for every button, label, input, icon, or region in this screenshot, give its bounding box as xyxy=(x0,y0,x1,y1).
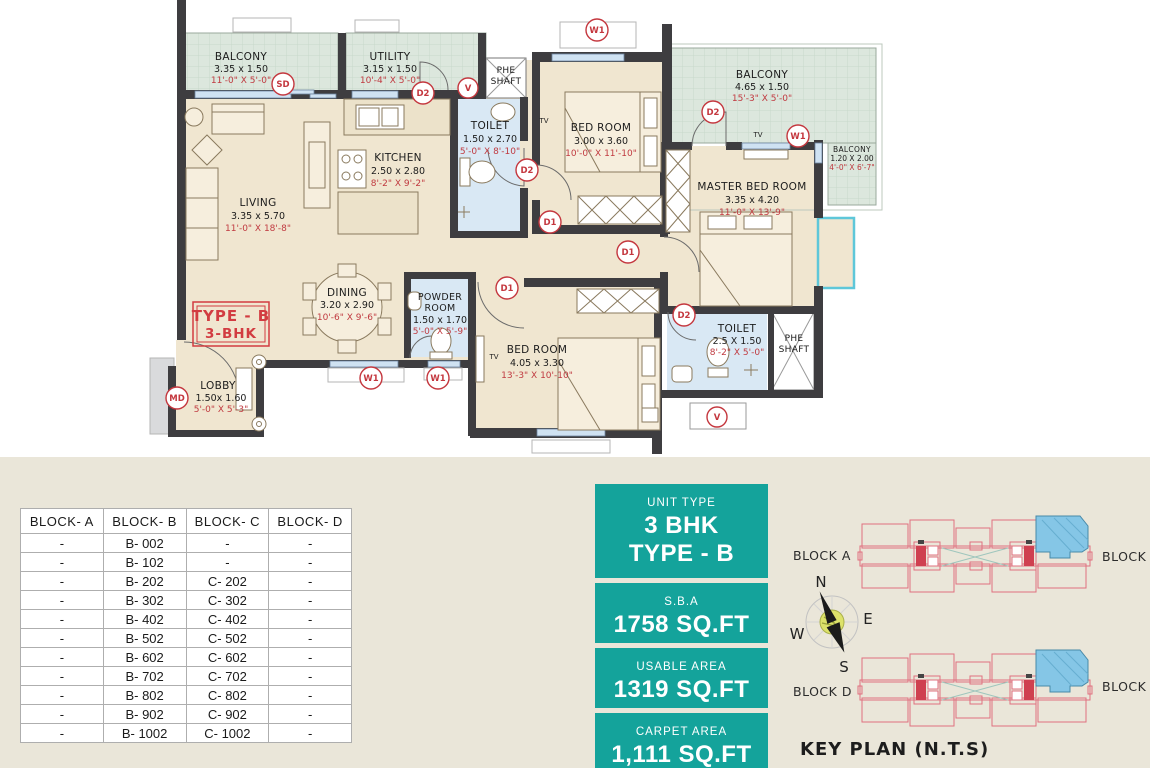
label-bedroom-top: BED ROOM xyxy=(571,122,632,134)
panel-unit-type: UNIT TYPE 3 BHK TYPE - B xyxy=(595,484,768,578)
wardrobe-bottom xyxy=(577,289,659,313)
table-row: -B- 902C- 902- xyxy=(21,705,352,724)
label-kitchen: KITCHEN xyxy=(374,152,422,164)
label-bedroom-bot: BED ROOM xyxy=(507,344,568,356)
svg-text:MD: MD xyxy=(169,394,185,404)
block-unit-table: BLOCK- A BLOCK- B BLOCK- C BLOCK- D -B- … xyxy=(20,508,352,743)
dresser xyxy=(476,336,484,382)
svg-text:D2: D2 xyxy=(417,89,430,99)
svg-text:W1: W1 xyxy=(363,374,378,384)
floor-plan: TYPE - B 3-BHK BALCONY 3.35 x 1.50 11'-0… xyxy=(0,0,1150,460)
panel-carpet-area-value: 1,111 SQ.FT xyxy=(595,741,768,768)
panel-sba-value: 1758 SQ.FT xyxy=(595,611,768,639)
svg-text:4.65 x 1.50: 4.65 x 1.50 xyxy=(735,82,789,93)
keyplan-building-top xyxy=(858,516,1092,592)
wardrobe-master xyxy=(666,150,690,232)
tv-label-1: TV xyxy=(538,117,548,125)
svg-text:D2: D2 xyxy=(678,311,691,321)
marker-d1-hall: D1 xyxy=(617,241,639,263)
tv-label-3: TV xyxy=(488,353,498,361)
marker-d2-toilet1: D2 xyxy=(516,159,538,181)
bed-master xyxy=(700,212,792,306)
label-living: LIVING xyxy=(239,197,276,209)
label-phe-bot-1: PHE xyxy=(785,334,804,344)
wardrobe xyxy=(578,196,662,224)
table-row: -B- 1002C- 1002- xyxy=(21,724,352,743)
marker-d1-bedroomtop: D1 xyxy=(539,211,561,233)
panel-sba-label: S.B.A xyxy=(595,596,768,608)
night-stand xyxy=(642,408,658,422)
svg-text:1.50 x 1.70: 1.50 x 1.70 xyxy=(413,315,467,326)
stove xyxy=(338,150,366,188)
svg-text:V: V xyxy=(714,413,721,423)
tv-label-2: TV xyxy=(752,131,762,139)
svg-text:5'-0" X 5'-3": 5'-0" X 5'-3" xyxy=(194,405,249,415)
svg-text:15'-3" X 5'-0": 15'-3" X 5'-0" xyxy=(732,94,792,104)
table-row: -B- 802C- 802- xyxy=(21,686,352,705)
svg-text:1.50 x 2.70: 1.50 x 2.70 xyxy=(463,134,517,145)
svg-text:13'-3" X 10'-10": 13'-3" X 10'-10" xyxy=(501,371,573,381)
marker-d1-bedroombot: D1 xyxy=(496,277,518,299)
svg-text:11'-0" X 18'-8": 11'-0" X 18'-8" xyxy=(225,224,291,234)
svg-text:D1: D1 xyxy=(544,218,557,228)
label-powder-1: POWDER xyxy=(418,292,462,303)
svg-text:2.5 X 1.50: 2.5 X 1.50 xyxy=(713,336,762,347)
table-row: -B- 002-- xyxy=(21,534,352,553)
marker-w1-top: W1 xyxy=(586,19,608,41)
marker-v-top: V xyxy=(458,78,478,98)
svg-text:5'-0" X 8'-10": 5'-0" X 8'-10" xyxy=(460,147,520,157)
panel-unit-type-value2: TYPE - B xyxy=(595,540,768,568)
side-table xyxy=(185,108,203,126)
table-row: -B- 702C- 702- xyxy=(21,667,352,686)
svg-text:D1: D1 xyxy=(622,248,635,258)
panel-unit-type-label: UNIT TYPE xyxy=(595,497,768,509)
marker-w1-dining1: W1 xyxy=(360,367,382,389)
col-header-block-a: BLOCK- A xyxy=(21,509,104,534)
label-phe-top-1: PHE xyxy=(497,66,516,76)
table-row: -B- 402C- 402- xyxy=(21,610,352,629)
keyplan-block-a: BLOCK A xyxy=(793,548,851,563)
label-phe-top-2: SHAFT xyxy=(491,77,522,87)
svg-text:8'-2" X 5'-0": 8'-2" X 5'-0" xyxy=(710,348,765,358)
panel-usable-area: USABLE AREA 1319 SQ.FT xyxy=(595,648,768,708)
svg-text:2.50 x 2.80: 2.50 x 2.80 xyxy=(371,166,425,177)
keyplan-block-c: BLOCK C xyxy=(1102,679,1150,694)
label-toilet-top: TOILET xyxy=(470,120,510,132)
compass-w: W xyxy=(790,625,805,643)
svg-text:4.05 x 3.30: 4.05 x 3.30 xyxy=(510,358,564,369)
svg-text:1.20 X 2.00: 1.20 X 2.00 xyxy=(830,154,874,163)
col-header-block-d: BLOCK- D xyxy=(269,509,352,534)
label-balcony-tr: BALCONY xyxy=(736,69,788,81)
floorplan-sheet: TYPE - B 3-BHK BALCONY 3.35 x 1.50 11'-0… xyxy=(0,0,1150,768)
marker-d2-utility: D2 xyxy=(412,82,434,104)
svg-text:4'-0" X 6'-7": 4'-0" X 6'-7" xyxy=(829,163,874,172)
svg-text:3.35 x 4.20: 3.35 x 4.20 xyxy=(725,195,779,206)
keyplan-title: KEY PLAN (N.T.S) xyxy=(800,739,989,760)
kitchen-island xyxy=(338,192,418,234)
panel-usable-area-value: 1319 SQ.FT xyxy=(595,676,768,704)
svg-text:8'-2" X 9'-2": 8'-2" X 9'-2" xyxy=(371,179,426,189)
type-box-line1: TYPE - B xyxy=(192,307,270,325)
panel-carpet-area: CARPET AREA 1,111 SQ.FT xyxy=(595,713,768,768)
label-dining: DINING xyxy=(327,287,367,299)
label-master: MASTER BED ROOM xyxy=(697,181,806,193)
label-toilet-bot: TOILET xyxy=(717,323,757,335)
keyplan-building-bottom xyxy=(858,650,1092,726)
table-row: -B- 602C- 602- xyxy=(21,648,352,667)
label-utility: UTILITY xyxy=(369,51,410,63)
marker-w1-master: W1 xyxy=(787,125,809,147)
marker-sd: SD xyxy=(272,73,294,95)
svg-text:10'-0" X 11'-10": 10'-0" X 11'-10" xyxy=(565,149,637,159)
compass-n: N xyxy=(815,573,826,591)
marker-v-bottom: V xyxy=(707,407,727,427)
panel-sba: S.B.A 1758 SQ.FT xyxy=(595,583,768,643)
svg-text:1.50x 1.60: 1.50x 1.60 xyxy=(196,393,247,404)
key-plan: BLOCK A BLOCK B BLOCK D BLOCK C N E W S … xyxy=(780,457,1150,768)
master-bay-window xyxy=(818,218,854,288)
keyplan-block-d: BLOCK D xyxy=(793,684,852,699)
marker-d2-toilet2: D2 xyxy=(673,304,695,326)
compass-s: S xyxy=(839,658,849,676)
svg-text:10'-6" X 9'-6": 10'-6" X 9'-6" xyxy=(317,313,377,323)
svg-text:SD: SD xyxy=(276,80,289,90)
svg-text:11'-0" X 5'-0": 11'-0" X 5'-0" xyxy=(211,76,271,86)
label-balcony-tl: BALCONY xyxy=(215,51,267,63)
label-powder-2: ROOM xyxy=(425,303,456,314)
marker-w1-dining2: W1 xyxy=(427,367,449,389)
svg-text:W1: W1 xyxy=(790,132,805,142)
svg-text:D2: D2 xyxy=(521,166,534,176)
svg-text:3.35 x 1.50: 3.35 x 1.50 xyxy=(214,64,268,75)
marker-md: MD xyxy=(166,387,188,409)
panel-carpet-area-label: CARPET AREA xyxy=(595,726,768,738)
label-lobby: LOBBY xyxy=(200,380,236,392)
sofa xyxy=(186,168,218,260)
type-box-line2: 3-BHK xyxy=(205,326,257,342)
panel-usable-area-label: USABLE AREA xyxy=(595,661,768,673)
tv-shelf xyxy=(744,150,788,159)
svg-text:3.15 x 1.50: 3.15 x 1.50 xyxy=(363,64,417,75)
svg-text:3.35 x 5.70: 3.35 x 5.70 xyxy=(231,211,285,222)
label-balcony-r: BALCONY xyxy=(833,145,871,154)
svg-text:D1: D1 xyxy=(501,284,514,294)
svg-text:3.00 x 3.60: 3.00 x 3.60 xyxy=(574,136,628,147)
marker-d2-master: D2 xyxy=(702,101,724,123)
panel-unit-type-value1: 3 BHK xyxy=(595,512,768,540)
loveseat xyxy=(212,104,264,134)
table-row: -B- 502C- 502- xyxy=(21,629,352,648)
svg-text:10'-4" X 5'-0": 10'-4" X 5'-0" xyxy=(360,76,420,86)
table-row: -B- 202C- 202- xyxy=(21,572,352,591)
label-phe-bot-2: SHAFT xyxy=(779,345,810,355)
col-header-block-b: BLOCK- B xyxy=(103,509,186,534)
col-header-block-c: BLOCK- C xyxy=(186,509,269,534)
table-row: -B- 302C- 302- xyxy=(21,591,352,610)
kitchen-counter xyxy=(344,99,450,135)
svg-text:11'-0" X 13'-9": 11'-0" X 13'-9" xyxy=(719,208,785,218)
tv-unit xyxy=(304,122,330,208)
compass-e: E xyxy=(863,610,872,628)
keyplan-block-b: BLOCK B xyxy=(1102,549,1150,564)
svg-text:5'-0" X 5'-9": 5'-0" X 5'-9" xyxy=(413,327,468,337)
compass: N E W S xyxy=(790,573,873,676)
svg-text:D2: D2 xyxy=(707,108,720,118)
svg-text:V: V xyxy=(465,84,472,94)
table-row: -B- 102-- xyxy=(21,553,352,572)
svg-text:3.20 x 2.90: 3.20 x 2.90 xyxy=(320,300,374,311)
svg-text:W1: W1 xyxy=(589,26,604,36)
svg-text:W1: W1 xyxy=(430,374,445,384)
